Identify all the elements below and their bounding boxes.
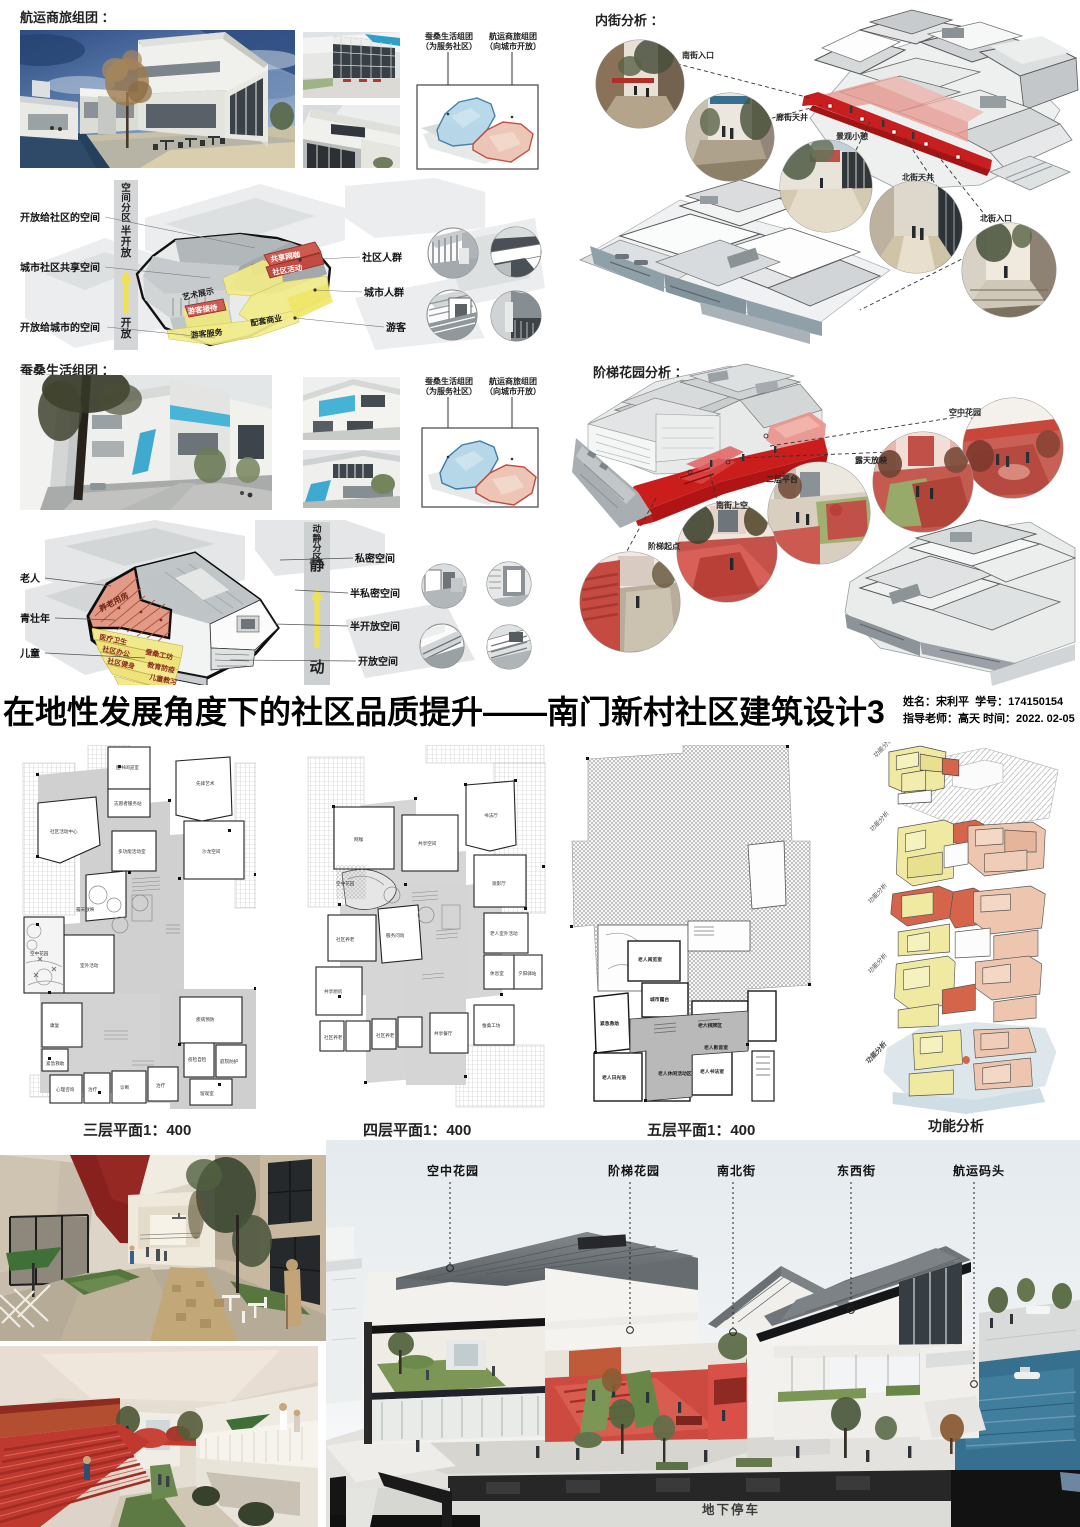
- svg-text:老人日光浴: 老人日光浴: [601, 1074, 626, 1081]
- svg-text:空间分区: 空间分区: [121, 182, 131, 224]
- svg-text:沙龙空间: 沙龙空间: [202, 848, 221, 855]
- svg-text:城市露台: 城市露台: [650, 996, 669, 1003]
- svg-text:景观小憩: 景观小憩: [836, 131, 868, 141]
- svg-text:城市社区共享空间: 城市社区共享空间: [20, 261, 100, 274]
- svg-text:功能分析: 功能分析: [866, 881, 888, 905]
- svg-text:共享餐厅: 共享餐厅: [434, 1030, 453, 1037]
- svg-text:开放给城市的空间: 开放给城市的空间: [20, 321, 100, 334]
- svg-text:南北街: 南北街: [717, 1163, 756, 1178]
- svg-text:室外活动: 室外活动: [80, 962, 99, 969]
- svg-text:康复: 康复: [50, 1022, 60, 1029]
- svg-text:蚕桑工坊: 蚕桑工坊: [482, 1022, 501, 1029]
- svg-text:露天放映: 露天放映: [76, 906, 95, 913]
- svg-text:老人休闲活动区: 老人休闲活动区: [657, 1070, 692, 1077]
- svg-text:老人: 老人: [19, 572, 41, 585]
- svg-text:紧急救助: 紧急救助: [600, 1020, 619, 1027]
- svg-text:疾病预防: 疾病预防: [196, 1016, 215, 1023]
- svg-text:城市人群: 城市人群: [364, 286, 404, 299]
- svg-text:书法厅: 书法厅: [484, 812, 498, 819]
- svg-text:治疗: 治疗: [88, 1086, 98, 1093]
- svg-text:留观室: 留观室: [200, 1090, 214, 1097]
- svg-text:地下停车: 地下停车: [702, 1502, 760, 1517]
- svg-text:诊断: 诊断: [120, 1084, 130, 1091]
- svg-text:半开放空间: 半开放空间: [350, 620, 400, 633]
- svg-text:疫检自检: 疫检自检: [188, 1056, 207, 1063]
- svg-text:紧急救助: 紧急救助: [46, 1060, 65, 1067]
- svg-text:网咖: 网咖: [354, 836, 364, 843]
- svg-text:半开放: 半开放: [120, 224, 132, 259]
- svg-text:庭院防护: 庭院防护: [220, 1058, 239, 1065]
- svg-text:南街上空: 南街上空: [716, 500, 748, 510]
- svg-text:夕阳驿站: 夕阳驿站: [518, 970, 537, 977]
- svg-text:功能分析: 功能分析: [864, 1039, 888, 1066]
- svg-text:社区养老: 社区养老: [324, 1034, 343, 1041]
- svg-text:志愿者服务站: 志愿者服务站: [114, 800, 142, 807]
- svg-text:社区养老: 社区养老: [336, 936, 355, 943]
- svg-text:儿童: 儿童: [19, 647, 40, 660]
- svg-text:治疗: 治疗: [156, 1082, 166, 1089]
- svg-text:老人棋牌区: 老人棋牌区: [697, 1022, 722, 1029]
- svg-text:空中花园: 空中花园: [949, 407, 981, 417]
- svg-text:空中花园: 空中花园: [30, 950, 49, 957]
- svg-text:二层平台: 二层平台: [766, 474, 798, 484]
- svg-text:廊街天井: 廊街天井: [776, 112, 808, 122]
- svg-text:北街入口: 北街入口: [980, 213, 1012, 223]
- svg-text:心理咨询: 心理咨询: [56, 1086, 75, 1093]
- svg-text:私密空间: 私密空间: [354, 552, 395, 565]
- svg-text:社区活动中心: 社区活动中心: [50, 828, 78, 835]
- svg-text:南街入口: 南街入口: [682, 50, 714, 60]
- svg-text:北街天井: 北街天井: [902, 172, 934, 182]
- svg-text:空中花园: 空中花园: [427, 1163, 479, 1178]
- svg-text:青壮年: 青壮年: [20, 612, 50, 625]
- svg-text:图书阅览室: 图书阅览室: [116, 764, 139, 771]
- svg-text:观影厅: 观影厅: [492, 880, 506, 887]
- svg-text:东西街: 东西街: [837, 1163, 876, 1178]
- svg-text:老人阅览室: 老人阅览室: [637, 956, 662, 963]
- svg-text:共享厨房: 共享厨房: [324, 988, 343, 995]
- svg-text:半私密空间: 半私密空间: [350, 587, 400, 600]
- svg-text:阶梯起点: 阶梯起点: [648, 541, 680, 551]
- svg-text:休息室: 休息室: [490, 970, 504, 977]
- svg-text:露天放映: 露天放映: [855, 455, 888, 465]
- svg-text:功能分析: 功能分析: [868, 809, 890, 833]
- svg-text:服务问询: 服务问询: [386, 932, 405, 939]
- svg-text:开放空间: 开放空间: [358, 655, 398, 668]
- svg-text:共享空间: 共享空间: [418, 840, 437, 847]
- svg-text:游客: 游客: [386, 321, 407, 334]
- svg-text:社区养老: 社区养老: [376, 1032, 395, 1039]
- svg-text:老人书法室: 老人书法室: [699, 1068, 724, 1075]
- svg-text:先锋艺术: 先锋艺术: [196, 780, 215, 787]
- svg-text:功能分析: 功能分析: [866, 951, 888, 975]
- svg-text:航运码头: 航运码头: [953, 1163, 1005, 1178]
- svg-text:老人室外活动: 老人室外活动: [490, 930, 518, 937]
- svg-text:社区人群: 社区人群: [361, 251, 402, 264]
- svg-text:阶梯花园: 阶梯花园: [608, 1163, 660, 1178]
- svg-text:老人影音室: 老人影音室: [703, 1044, 728, 1051]
- svg-text:开放给社区的空间: 开放给社区的空间: [20, 211, 100, 224]
- svg-text:多功能活动室: 多功能活动室: [118, 848, 146, 855]
- svg-text:空中花园: 空中花园: [336, 880, 355, 887]
